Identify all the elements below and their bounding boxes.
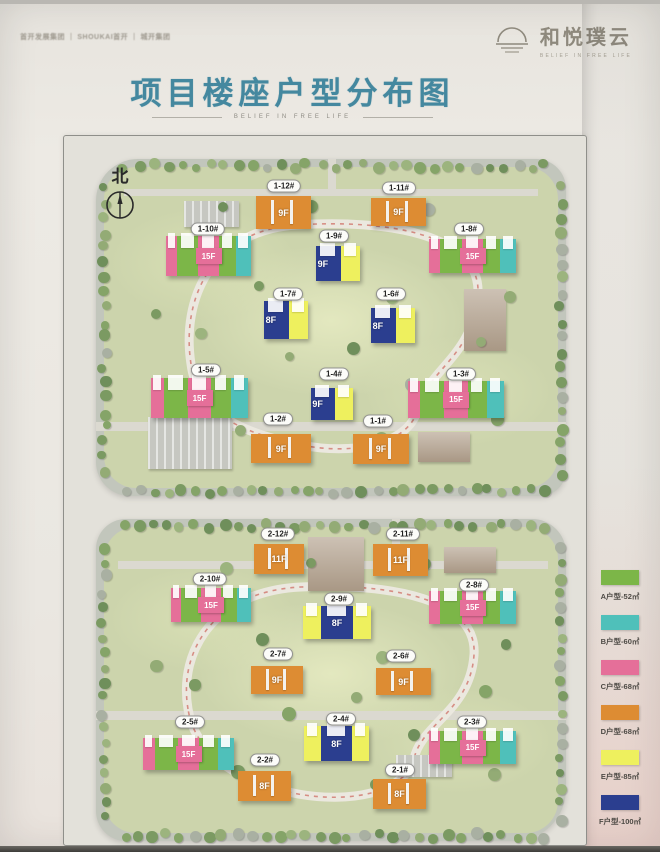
tree-icon — [454, 521, 464, 531]
community-service-building — [418, 432, 470, 462]
building-number-pill: 1-11# — [382, 182, 416, 195]
tree-icon — [387, 832, 398, 843]
tree-icon — [205, 489, 215, 499]
tree-icon — [557, 739, 568, 750]
tree-icon — [101, 665, 109, 673]
tree-icon — [97, 364, 106, 373]
floor-count-label: 9F — [251, 434, 311, 463]
building-1-1#: 9F — [353, 434, 409, 464]
subtitle-row: BELIEF IN FREE LIFE — [0, 114, 585, 120]
legend-item-F: F户型-100㎡ — [599, 795, 641, 827]
roof-detail — [307, 723, 317, 736]
building-number-pill: 2-4# — [326, 713, 356, 726]
tree-icon — [554, 301, 564, 311]
tree-icon — [414, 162, 426, 174]
building-number-pill: 2-2# — [250, 754, 280, 767]
building-number-pill: 1-4# — [319, 368, 349, 381]
building-1-9#: 9F — [316, 246, 360, 281]
roof-detail — [503, 728, 512, 741]
tree-icon — [100, 390, 112, 402]
tree-icon — [497, 488, 506, 497]
tree-icon — [456, 833, 466, 843]
compass-icon — [104, 189, 136, 221]
tree-icon — [332, 164, 340, 172]
brochure-page: 首开发展集团 ｜ SHOUKAI首开 ｜ 城开集团 和悦璞云 BELIEF IN… — [0, 0, 660, 852]
floor-count-badge: 15F — [460, 248, 486, 264]
building-number-pill: 1-9# — [319, 230, 349, 243]
building-segment: 8F — [264, 301, 289, 339]
legend-swatch-A — [601, 570, 639, 585]
building-1-3#: 15F — [408, 381, 504, 418]
tree-icon — [175, 484, 187, 496]
floor-count-label: 9F — [376, 668, 431, 695]
tree-icon — [501, 639, 511, 649]
roof-detail — [221, 735, 231, 747]
building-1-8#: 15F — [429, 239, 516, 273]
tree-icon — [341, 487, 352, 498]
building-2-9#: 8F — [303, 606, 371, 639]
floor-count-label: 8F — [321, 606, 354, 639]
tree-icon — [355, 486, 367, 498]
tree-icon — [195, 328, 207, 340]
tree-icon — [299, 830, 309, 840]
tree-icon — [204, 523, 215, 534]
tree-icon — [291, 486, 299, 494]
roof-detail — [215, 375, 227, 390]
building-segment — [143, 738, 155, 770]
building-segment — [335, 388, 353, 420]
tree-icon — [344, 523, 352, 531]
roof-detail — [306, 603, 317, 616]
tree-icon — [359, 830, 369, 840]
roof-detail — [356, 603, 367, 616]
roof-detail — [444, 728, 457, 741]
building-number-pill: 2-6# — [386, 650, 416, 663]
tree-icon — [555, 616, 565, 626]
floor-count-badge: 15F — [460, 740, 486, 756]
building-number-pill: 2-3# — [457, 716, 487, 729]
legend-item-B: B户型-60㎡ — [601, 615, 640, 647]
building-number-pill: 1-6# — [376, 288, 406, 301]
building-2-7#: 9F — [251, 666, 303, 694]
building-number-pill: 2-8# — [459, 579, 489, 592]
tree-icon — [319, 160, 328, 169]
roof-detail — [185, 585, 197, 598]
roof-detail — [425, 378, 439, 392]
tree-icon — [151, 489, 159, 497]
tree-icon — [234, 522, 243, 531]
tree-icon — [415, 484, 425, 494]
roof-detail — [344, 243, 356, 256]
tree-icon — [430, 164, 440, 174]
building-2-1#: 8F — [373, 779, 426, 809]
building-1-12#: 9F — [256, 196, 311, 229]
tree-icon — [299, 158, 309, 168]
tree-icon — [558, 199, 569, 210]
north-indicator: 北 — [102, 162, 138, 221]
tree-icon — [99, 329, 110, 340]
tree-icon — [515, 160, 526, 171]
tree-icon — [555, 574, 567, 586]
building-segment — [341, 246, 360, 281]
building-segment — [199, 738, 217, 770]
roof-detail — [168, 375, 183, 390]
building-segment — [352, 726, 369, 761]
tree-icon — [555, 227, 567, 239]
roof-detail — [471, 378, 483, 392]
roof-detail — [399, 305, 411, 318]
subtitle-rule-right — [363, 117, 433, 118]
floor-count-badge: 15F — [176, 746, 202, 762]
building-number-pill: 2-11# — [386, 528, 420, 541]
tree-icon — [558, 691, 568, 701]
building-number-pill: 1-7# — [273, 288, 303, 301]
building-segment: 9F — [311, 388, 335, 420]
roof-detail — [159, 735, 173, 747]
building-segment — [500, 239, 516, 273]
tree-icon — [215, 829, 226, 840]
building-1-10#: 15F — [166, 236, 251, 276]
building-segment — [166, 236, 177, 276]
tree-icon — [557, 647, 565, 655]
building-2-6#: 9F — [376, 668, 431, 695]
floor-count-label: 9F — [316, 246, 330, 281]
tree-icon — [303, 486, 314, 497]
building-number-pill: 2-10# — [193, 573, 227, 586]
tree-icon — [401, 160, 412, 171]
building-segment — [487, 381, 504, 418]
tree-icon — [526, 520, 536, 530]
legend-label-F: F户型-100㎡ — [599, 816, 641, 827]
building-segment — [500, 731, 516, 764]
parking-lot — [148, 417, 232, 469]
tree-icon — [389, 161, 398, 170]
roof-detail — [238, 233, 247, 248]
building-segment — [236, 236, 251, 276]
tree-icon — [96, 710, 107, 721]
building-segment — [155, 738, 178, 770]
tree-icon — [150, 660, 162, 672]
tree-icon — [101, 560, 109, 568]
building-segment — [289, 301, 308, 339]
tree-icon — [102, 797, 111, 806]
tree-icon — [510, 519, 521, 530]
tree-icon — [556, 244, 568, 256]
roof-detail — [466, 236, 479, 249]
tree-icon — [557, 723, 568, 734]
page-title: 项目楼座户型分布图 — [0, 68, 585, 113]
roof-detail — [222, 233, 232, 248]
building-segment: 8F — [321, 726, 352, 761]
tree-icon — [526, 833, 537, 844]
roof-detail — [234, 375, 244, 390]
building-number-pill: 1-8# — [454, 223, 484, 236]
building-segment — [429, 591, 440, 624]
tree-icon — [277, 159, 288, 170]
building-segment: 8F — [371, 308, 396, 343]
tree-icon — [329, 521, 341, 533]
tree-icon — [99, 678, 111, 690]
roof-detail — [503, 588, 512, 601]
tree-icon — [555, 797, 563, 805]
tree-icon — [486, 522, 497, 533]
tree-icon — [557, 392, 568, 403]
building-number-pill: 2-1# — [385, 764, 415, 777]
building-segment — [429, 731, 440, 764]
building-1-11#: 9F — [371, 198, 426, 226]
tree-icon — [458, 486, 466, 494]
legend-label-C: C户型-68㎡ — [601, 681, 640, 692]
north-label: 北 — [102, 162, 138, 187]
tree-icon — [100, 467, 110, 477]
legend-swatch-E — [601, 750, 639, 765]
building-segment — [151, 378, 164, 418]
legend-label-A: A户型-52㎡ — [601, 591, 640, 602]
building-2-10#: 15F — [171, 588, 251, 622]
tree-icon — [468, 522, 478, 532]
roof-detail — [486, 588, 496, 601]
building-segment — [171, 588, 181, 622]
floor-count-label: 9F — [251, 666, 303, 694]
tree-icon — [134, 520, 146, 532]
tree-icon — [165, 489, 174, 498]
tree-icon — [189, 679, 200, 690]
building-segment — [237, 588, 251, 622]
tree-icon — [538, 833, 550, 845]
floor-count-badge: 15F — [460, 600, 486, 616]
floor-count-label: 8F — [373, 779, 426, 809]
building-number-pill: 1-1# — [363, 415, 393, 428]
floor-count-badge: 15F — [196, 248, 222, 264]
tree-icon — [218, 202, 228, 212]
tree-icon — [329, 832, 341, 844]
tree-icon — [471, 827, 483, 839]
building-segment — [420, 381, 444, 418]
tree-icon — [555, 588, 563, 596]
tree-icon — [248, 160, 259, 171]
building-segment — [211, 378, 230, 418]
tree-icon — [443, 829, 455, 841]
tree-icon — [101, 321, 110, 330]
developer-logos: 首开发展集团 ｜ SHOUKAI首开 ｜ 城开集团 — [20, 32, 171, 42]
roof-detail — [338, 385, 349, 397]
floor-count-label: 8F — [264, 301, 278, 339]
roof-detail — [431, 236, 438, 249]
tree-icon — [482, 484, 490, 492]
tree-icon — [539, 523, 550, 534]
building-segment — [429, 239, 440, 273]
tree-icon — [538, 159, 547, 168]
legend-swatch-F — [601, 795, 639, 810]
tree-icon — [122, 487, 131, 496]
legend-swatch-C — [601, 660, 639, 675]
tree-icon — [316, 521, 324, 529]
legend-label-D: D户型-68㎡ — [601, 726, 640, 737]
floor-count-label: 8F — [321, 726, 352, 761]
building-1-6#: 8F — [371, 308, 415, 343]
roof-detail — [486, 728, 496, 741]
tree-icon — [471, 163, 483, 175]
tree-icon — [554, 660, 565, 671]
roof-detail — [181, 233, 194, 248]
building-segment — [396, 308, 415, 343]
tree-icon — [343, 160, 352, 169]
tree-icon — [359, 520, 368, 529]
floor-count-label: 9F — [353, 434, 409, 464]
building-number-pill: 2-9# — [324, 593, 354, 606]
tree-icon — [100, 647, 110, 657]
commercial-building — [308, 537, 364, 591]
building-segment — [408, 381, 420, 418]
roof-detail — [153, 375, 161, 390]
building-2-4#: 8F — [304, 726, 369, 761]
tree-icon — [557, 349, 567, 359]
subtitle-rule-left — [152, 117, 222, 118]
building-2-11#: 11F — [373, 544, 428, 576]
tree-icon — [233, 828, 244, 839]
tree-icon — [220, 519, 232, 531]
tree-icon — [258, 486, 267, 495]
floor-count-label: 9F — [311, 388, 324, 420]
tree-icon — [299, 521, 310, 532]
tree-icon — [427, 484, 438, 495]
floor-count-label: 8F — [238, 771, 291, 801]
roof-detail — [145, 735, 152, 747]
tree-icon — [555, 437, 565, 447]
floor-count-label: 8F — [371, 308, 385, 343]
building-number-pill: 1-3# — [446, 368, 476, 381]
roof-detail — [223, 585, 233, 598]
tree-icon — [98, 241, 107, 250]
building-1-4#: 9F — [311, 388, 353, 420]
retail-building — [444, 547, 496, 573]
roof-detail — [431, 588, 438, 601]
tree-icon — [174, 833, 183, 842]
building-segment — [353, 606, 371, 639]
tree-icon — [483, 832, 493, 842]
tree-icon — [99, 543, 111, 555]
tree-icon — [282, 707, 296, 721]
tree-icon — [557, 260, 568, 271]
tree-icon — [100, 376, 112, 388]
sun-sea-icon — [492, 20, 532, 60]
tree-icon — [254, 281, 264, 291]
tree-icon — [555, 676, 564, 685]
roof-detail — [173, 585, 179, 598]
tree-icon — [98, 691, 107, 700]
tree-icon — [444, 484, 453, 493]
tree-icon — [556, 214, 567, 225]
roof-detail — [431, 728, 438, 741]
tree-icon — [428, 834, 438, 844]
building-segment — [500, 591, 516, 624]
tree-icon — [557, 470, 568, 481]
building-segment — [483, 591, 500, 624]
floor-count-label: 11F — [254, 544, 304, 574]
tree-icon — [315, 487, 323, 495]
tree-icon — [247, 831, 257, 841]
roof-detail — [355, 723, 365, 736]
building-segment — [303, 606, 321, 639]
tree-icon — [557, 271, 568, 282]
building-segment — [483, 731, 500, 764]
roof-detail — [205, 585, 217, 598]
tree-icon — [557, 424, 569, 436]
roof-detail — [490, 378, 500, 392]
tree-icon — [368, 522, 380, 534]
tree-icon — [99, 722, 108, 731]
legend-item-D: D户型-68㎡ — [601, 705, 640, 737]
tree-icon — [415, 833, 424, 842]
tree-icon — [204, 832, 216, 844]
tree-icon — [122, 833, 131, 842]
building-2-12#: 11F — [254, 544, 304, 574]
building-2-2#: 8F — [238, 771, 291, 801]
unit-type-legend: A户型-52㎡B户型-60㎡C户型-68㎡D户型-68㎡E户型-85㎡F户型-1… — [588, 570, 652, 840]
tree-icon — [328, 489, 338, 499]
building-segment — [231, 378, 248, 418]
tree-icon — [558, 290, 567, 299]
building-number-pill: 1-10# — [191, 223, 225, 236]
tree-icon — [558, 634, 567, 643]
building-segment — [164, 378, 188, 418]
tree-icon — [442, 161, 453, 172]
building-1-7#: 8F — [264, 301, 308, 339]
tree-icon — [499, 164, 508, 173]
floor-count-badge: 15F — [187, 390, 213, 406]
tree-icon — [374, 486, 383, 495]
tree-icon — [100, 768, 109, 777]
building-segment — [483, 239, 500, 273]
tree-icon — [555, 361, 565, 371]
building-1-2#: 9F — [251, 434, 311, 463]
tree-icon — [247, 485, 256, 494]
building-segment — [304, 726, 321, 761]
building-number-pill: 1-5# — [191, 364, 221, 377]
tree-icon — [100, 230, 111, 241]
tree-icon — [514, 834, 523, 843]
tree-icon — [497, 519, 505, 527]
tree-icon — [347, 342, 360, 355]
floor-count-label: 11F — [373, 544, 428, 576]
legend-swatch-B — [601, 615, 639, 630]
tree-icon — [97, 451, 105, 459]
building-number-pill: 2-5# — [175, 716, 205, 729]
tree-icon — [97, 256, 108, 267]
tree-icon — [557, 331, 566, 340]
roof-detail — [168, 233, 175, 248]
tree-icon — [100, 410, 111, 421]
building-segment — [218, 738, 234, 770]
tree-icon — [174, 522, 184, 532]
tree-icon — [146, 831, 157, 842]
page-subtitle: BELIEF IN FREE LIFE — [234, 114, 351, 120]
building-2-3#: 15F — [429, 731, 516, 764]
roof-detail — [239, 585, 248, 598]
tree-icon — [233, 486, 243, 496]
roof-detail — [410, 378, 417, 392]
tree-icon — [149, 520, 158, 529]
tree-icon — [316, 832, 326, 842]
roof-detail — [192, 375, 206, 390]
roof-detail — [444, 236, 457, 249]
tree-icon — [558, 320, 567, 329]
tree-icon — [133, 831, 143, 841]
floor-count-badge: 15F — [198, 597, 224, 613]
building-2-5#: 15F — [143, 738, 234, 770]
tree-icon — [397, 484, 409, 496]
site-plan-phase-1: 9F1-12#9F1-11#15F1-10#9F1-9#15F1-8#8F1-7… — [96, 159, 566, 496]
